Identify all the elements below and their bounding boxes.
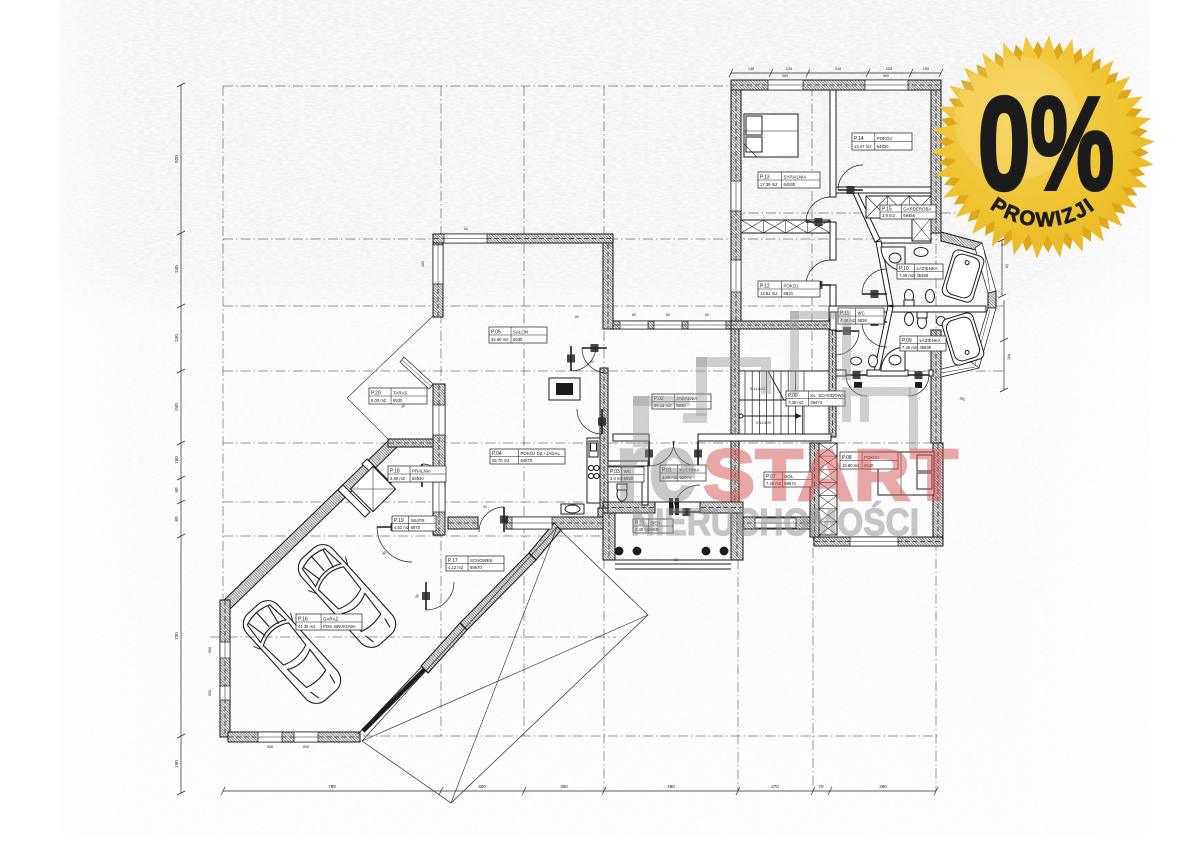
svg-text:39474: 39474 [810,400,822,405]
svg-text:6970: 6970 [411,525,421,530]
svg-text:6930: 6930 [393,398,403,403]
svg-text:560: 560 [883,74,889,78]
svg-text:TARAS: TARAS [393,391,407,396]
svg-text:100: 100 [923,67,929,71]
svg-text:70: 70 [818,784,824,789]
svg-text:7.38 m2: 7.38 m2 [788,400,804,405]
svg-text:P.05: P.05 [491,330,501,336]
svg-text:P.15: P.15 [882,207,892,213]
svg-text:ŁAZIENKA: ŁAZIENKA [919,338,940,343]
svg-text:190: 190 [174,760,179,768]
svg-text:41.35 m2: 41.35 m2 [298,624,316,629]
svg-text:POKÓJ DZ.+JADAL.: POKÓJ DZ.+JADAL. [521,451,562,456]
svg-text:WC: WC [857,311,864,316]
svg-text:65: 65 [1005,264,1009,268]
svg-text:160: 160 [174,456,179,464]
svg-text:858: 858 [303,745,309,749]
svg-text:4.12 m2: 4.12 m2 [448,565,464,570]
svg-text:300: 300 [478,784,486,789]
svg-text:P.09: P.09 [902,338,912,344]
svg-text:300: 300 [560,784,568,789]
svg-text:60: 60 [174,516,179,522]
svg-text:7.46 m2: 7.46 m2 [902,345,918,350]
svg-text:WIATR.: WIATR. [411,518,426,523]
svg-text:SCHOWEK: SCHOWEK [470,558,493,563]
svg-text:520: 520 [174,155,179,163]
svg-text:POS. BRUKOWA: POS. BRUKOWA [323,624,356,629]
svg-text:64930: 64930 [877,144,889,149]
svg-text:17.39 m2: 17.39 m2 [760,182,778,187]
svg-text:P.20: P.20 [371,391,381,397]
svg-text:4.52 m2: 4.52 m2 [394,525,410,530]
svg-text:6.00 m2: 6.00 m2 [371,398,387,403]
svg-text:64930: 64930 [784,182,796,187]
svg-text:P.17: P.17 [448,558,458,564]
svg-text:6934: 6934 [784,291,794,296]
svg-text:780: 780 [328,784,336,789]
svg-text:730: 730 [174,632,179,640]
svg-text:210: 210 [835,67,841,71]
svg-text:858: 858 [208,647,212,653]
svg-text:POKÓJ: POKÓJ [877,136,892,141]
svg-text:80: 80 [464,227,468,231]
svg-text:3.9 m2: 3.9 m2 [882,213,895,218]
svg-text:64930: 64930 [412,476,424,481]
svg-text:64570: 64570 [521,458,533,463]
svg-text:SYPIALNIA: SYPIALNIA [784,175,807,180]
svg-text:80: 80 [666,313,670,317]
svg-text:P.18: P.18 [390,469,400,475]
svg-text:80: 80 [705,313,709,317]
svg-text:P.04: P.04 [492,451,502,457]
svg-text:150: 150 [886,67,892,71]
svg-text:45838: 45838 [919,345,931,350]
svg-text:240: 240 [174,265,179,273]
svg-text:69456: 69456 [903,213,915,218]
svg-text:240: 240 [174,334,179,342]
svg-text:GARDEROBA: GARDEROBA [903,207,931,212]
svg-text:P.12: P.12 [760,284,770,290]
svg-text:P.16: P.16 [298,617,308,623]
svg-text:13.47 m2: 13.47 m2 [854,144,872,149]
svg-text:65: 65 [1001,243,1005,247]
svg-text:ŁAZIENKA: ŁAZIENKA [916,266,937,271]
svg-text:270: 270 [771,784,779,789]
svg-text:280: 280 [1007,354,1012,360]
svg-text:858: 858 [208,690,212,696]
svg-text:380: 380 [879,784,887,789]
svg-text:80: 80 [674,558,678,562]
svg-text:34.60 m2: 34.60 m2 [491,337,509,342]
svg-text:KL. SCHODOWA: KL. SCHODOWA [810,393,844,398]
svg-text:25.70 m2: 25.70 m2 [492,458,510,463]
svg-text:140: 140 [748,67,754,71]
svg-text:5838: 5838 [857,318,867,323]
svg-text:P.13: P.13 [760,175,770,181]
svg-text:POKÓJ: POKÓJ [784,284,799,289]
svg-text:980: 980 [782,74,788,78]
svg-text:9·14,8/29: 9·14,8/29 [756,421,771,425]
svg-text:P.10: P.10 [899,266,909,272]
svg-text:SALON: SALON [513,330,528,335]
svg-text:14.81 m2: 14.81 m2 [760,291,778,296]
svg-text:3.90 m2: 3.90 m2 [390,476,406,481]
svg-text:90: 90 [483,505,487,509]
svg-text:69670: 69670 [470,565,482,570]
svg-text:P.14: P.14 [854,136,864,142]
svg-text:6930: 6930 [513,337,523,342]
svg-text:GARAŻ: GARAŻ [323,617,338,622]
svg-text:90: 90 [590,360,594,364]
svg-text:80: 80 [632,313,636,317]
svg-text:P.19: P.19 [394,518,404,524]
svg-text:130: 130 [786,67,792,71]
svg-text:180: 180 [421,261,425,267]
svg-text:80: 80 [575,315,579,319]
svg-text:480: 480 [667,784,675,789]
svg-text:NIERUCHOMOŚCI: NIERUCHOMOŚCI [631,500,919,544]
svg-text:50: 50 [174,487,179,493]
svg-text:PRALNIA: PRALNIA [412,469,431,474]
svg-text:45358: 45358 [916,273,928,278]
svg-text:240: 240 [174,403,179,411]
svg-text:858: 858 [267,745,273,749]
svg-text:7.49 m2: 7.49 m2 [899,273,915,278]
